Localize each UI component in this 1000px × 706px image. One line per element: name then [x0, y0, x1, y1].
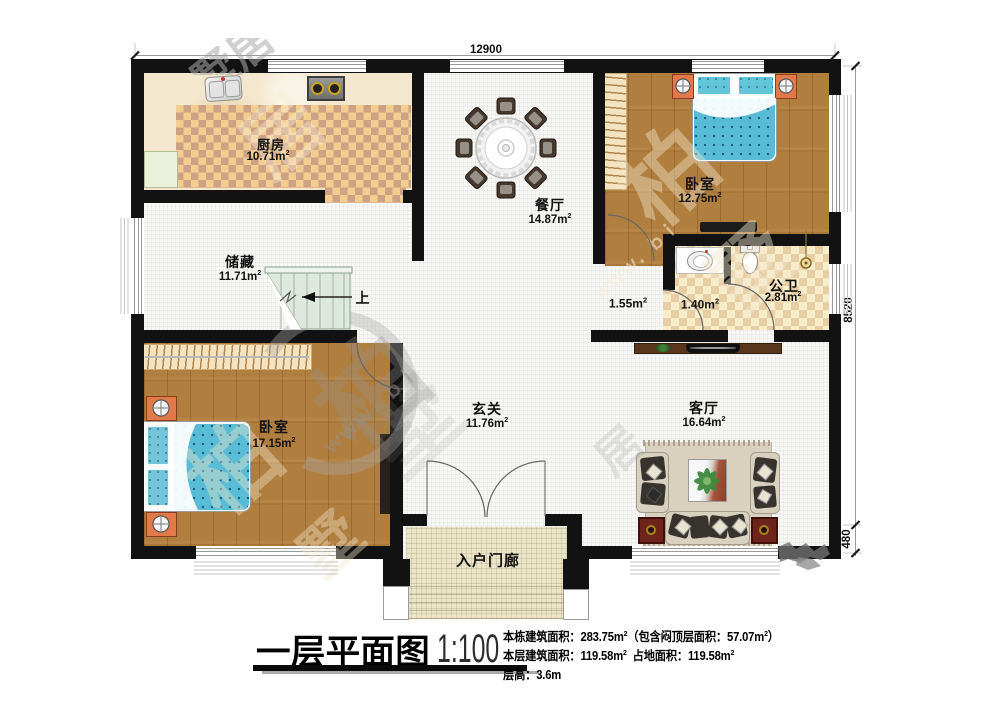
svg-text:12900: 12900 — [470, 44, 502, 56]
svg-text:480: 480 — [841, 529, 853, 548]
svg-text:墅: 墅 — [287, 500, 376, 590]
svg-text:居: 居 — [585, 415, 654, 484]
svg-text:8520: 8520 — [843, 297, 855, 323]
svg-text:ｗｗｗ．ｂｉ: ｗｗｗ．ｂｉ — [589, 217, 683, 304]
